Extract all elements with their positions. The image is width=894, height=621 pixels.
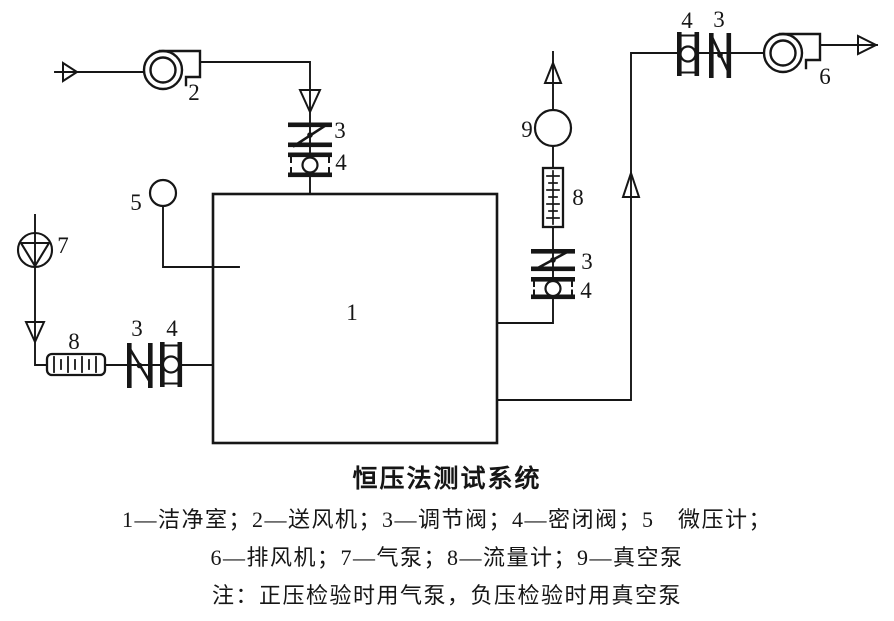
sealing-valve-label-left: 4 (166, 316, 178, 341)
flow-meter-label-left: 8 (68, 329, 80, 354)
sealing-valve-label-top: 4 (335, 150, 347, 175)
sealing-valve-label-right: 4 (580, 278, 592, 303)
pipe-manometer (163, 206, 239, 267)
legend-note: 注：正压检验时用气泵，负压检验时用真空泵 (0, 578, 894, 610)
pipe-exhaust-branch (497, 53, 764, 400)
sealing-valve-label-exhaust: 4 (681, 8, 693, 33)
regulating-valve-symbol-exhaust (709, 33, 731, 78)
clean-room-label: 1 (346, 300, 358, 325)
air-pump-label: 7 (57, 233, 69, 258)
sealing-valve-symbol-exhaust (677, 32, 699, 76)
legend-line-1: 1—洁净室；2—送风机；3—调节阀；4—密闭阀；5 微压计； (0, 502, 894, 534)
figure-title: 恒压法测试系统 (0, 459, 894, 495)
flow-meter-label-right: 8 (572, 185, 584, 210)
legend-line-2: 6—排风机；7—气泵；8—流量计；9—真空泵 (0, 540, 894, 572)
flow-meter-scale (54, 357, 96, 372)
regulating-valve-symbol-left (127, 343, 153, 388)
regulating-valve-label-exhaust: 3 (713, 7, 725, 32)
vacuum-pump-label: 9 (521, 117, 533, 142)
flow-meter-symbol-right (543, 168, 563, 227)
regulating-valve-symbol-right (531, 249, 575, 271)
micro-manometer-symbol (150, 180, 176, 206)
micro-manometer-label: 5 (130, 190, 142, 215)
regulating-valve-label-left: 3 (131, 316, 143, 341)
figure-page: 1 2 3 4 5 7 8 3 4 9 8 3 4 4 3 6 恒压法测试系统 … (0, 0, 894, 621)
sealing-valve-symbol-right (531, 277, 575, 299)
exhaust-fan-label: 6 (819, 64, 831, 89)
flow-meter-symbol-left (47, 354, 105, 375)
exhaust-fan-symbol (764, 34, 820, 72)
regulating-valve-label-top: 3 (334, 118, 346, 143)
sealing-valve-symbol-top (288, 153, 332, 178)
sealing-valve-symbol-left (160, 342, 182, 387)
vacuum-pump-symbol (535, 110, 571, 146)
supply-fan-label: 2 (188, 80, 200, 105)
regulating-valve-symbol-top (288, 123, 332, 148)
regulating-valve-label-right: 3 (581, 249, 593, 274)
